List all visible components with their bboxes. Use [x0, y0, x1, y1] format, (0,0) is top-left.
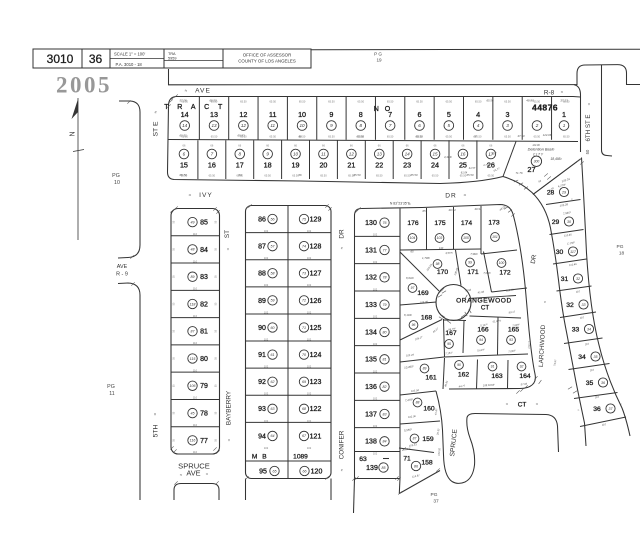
svg-text:97: 97 — [411, 286, 415, 290]
svg-text:65.50: 65.50 — [446, 100, 453, 104]
svg-text:16: 16 — [208, 161, 216, 170]
svg-text:102: 102 — [373, 287, 378, 291]
svg-text:5: 5 — [447, 110, 451, 119]
svg-text:27: 27 — [527, 165, 535, 174]
svg-text:30: 30 — [556, 249, 564, 256]
svg-text:91: 91 — [491, 365, 495, 369]
svg-text:11: 11 — [109, 391, 115, 397]
svg-text:65.50: 65.50 — [411, 173, 418, 177]
svg-text:30: 30 — [567, 220, 571, 224]
svg-text:102: 102 — [307, 310, 312, 314]
svg-text:65.50: 65.50 — [467, 173, 474, 177]
svg-text:13: 13 — [211, 123, 217, 128]
svg-text:11: 11 — [321, 152, 326, 157]
svg-text:8: 8 — [359, 123, 362, 128]
svg-text:9: 9 — [329, 110, 333, 119]
svg-text:78: 78 — [383, 276, 387, 280]
svg-text:102: 102 — [373, 397, 378, 401]
svg-text:20: 20 — [319, 161, 327, 170]
svg-text:88: 88 — [258, 271, 266, 278]
svg-text:DR: DR — [445, 193, 457, 200]
svg-text:22: 22 — [375, 161, 383, 170]
svg-text:64: 64 — [238, 173, 242, 177]
svg-text:130: 130 — [439, 246, 444, 250]
svg-text:100: 100 — [499, 261, 505, 265]
svg-text:3: 3 — [506, 123, 509, 128]
svg-text:73: 73 — [302, 272, 306, 276]
svg-text:85: 85 — [200, 220, 208, 227]
svg-text:89: 89 — [258, 298, 266, 305]
svg-text:102: 102 — [373, 233, 378, 237]
svg-text:48: 48 — [191, 248, 195, 252]
svg-text:65.50: 65.50 — [432, 174, 439, 178]
svg-text:84: 84 — [383, 440, 387, 444]
svg-text:TRA: TRA — [168, 52, 176, 56]
svg-text:102: 102 — [373, 424, 378, 428]
svg-text:65.50: 65.50 — [211, 134, 218, 138]
svg-text:65.79: 65.79 — [180, 173, 187, 177]
svg-text:92: 92 — [258, 379, 266, 386]
svg-text:71.76: 71.76 — [516, 171, 523, 175]
svg-text:29: 29 — [552, 219, 560, 226]
svg-text:160: 160 — [423, 406, 435, 413]
svg-text:102: 102 — [373, 260, 378, 264]
svg-text:95: 95 — [259, 469, 267, 476]
svg-text:172: 172 — [499, 270, 511, 277]
svg-text:65.50: 65.50 — [269, 134, 276, 138]
svg-text:159: 159 — [422, 436, 434, 443]
svg-text:102: 102 — [307, 392, 312, 396]
svg-text:9: 9 — [330, 123, 333, 128]
svg-text:95: 95 — [447, 342, 451, 346]
svg-text:81: 81 — [383, 358, 387, 362]
svg-text:57.28: 57.28 — [180, 99, 187, 103]
svg-text:102: 102 — [307, 229, 312, 233]
svg-text:138: 138 — [365, 439, 377, 446]
svg-text:93: 93 — [509, 338, 513, 342]
svg-text:139: 139 — [366, 465, 378, 472]
svg-text:79: 79 — [200, 383, 208, 390]
svg-text:132: 132 — [365, 275, 377, 282]
svg-text:58: 58 — [271, 272, 275, 276]
svg-text:65.50: 65.50 — [269, 100, 276, 104]
svg-text:65.50: 65.50 — [487, 99, 494, 103]
svg-text:102: 102 — [307, 446, 312, 450]
svg-text:1: 1 — [563, 123, 566, 128]
svg-text:106: 106 — [190, 384, 196, 388]
svg-text:102: 102 — [264, 310, 269, 314]
svg-text:120: 120 — [311, 469, 323, 476]
svg-text:37: 37 — [433, 499, 439, 505]
svg-text:94: 94 — [479, 338, 483, 342]
svg-text:61: 61 — [271, 353, 275, 357]
svg-text:80: 80 — [383, 330, 387, 334]
svg-text:93: 93 — [258, 406, 266, 413]
svg-text:65: 65 — [410, 250, 414, 254]
svg-text:10: 10 — [300, 123, 306, 128]
svg-text:124.06: 124.06 — [532, 144, 540, 147]
svg-text:R-8: R-8 — [544, 90, 555, 97]
svg-text:110: 110 — [193, 396, 198, 400]
svg-text:168: 168 — [421, 315, 433, 322]
svg-text:50: 50 — [585, 149, 590, 154]
svg-text:65.50: 65.50 — [358, 100, 365, 104]
svg-text:COUNTY OF LOS ANGELES: COUNTY OF LOS ANGELES — [238, 59, 296, 64]
svg-text:102: 102 — [373, 342, 378, 346]
svg-text:36: 36 — [601, 381, 605, 385]
svg-text:45: 45 — [191, 411, 195, 415]
svg-text:66: 66 — [298, 173, 302, 177]
svg-text:19: 19 — [292, 161, 300, 170]
svg-text:102: 102 — [264, 283, 269, 287]
svg-text:129: 129 — [310, 216, 322, 223]
svg-text:117: 117 — [570, 250, 577, 254]
svg-text:102: 102 — [264, 392, 269, 396]
svg-text:65.50: 65.50 — [299, 100, 306, 104]
svg-text:87: 87 — [258, 244, 266, 251]
svg-text:98: 98 — [436, 262, 440, 266]
svg-text:162: 162 — [458, 372, 470, 379]
svg-text:110: 110 — [193, 287, 198, 291]
svg-text:166: 166 — [477, 327, 489, 334]
svg-text:123: 123 — [310, 379, 322, 386]
svg-text:86: 86 — [258, 216, 266, 223]
svg-text:110: 110 — [193, 259, 198, 263]
svg-text:14: 14 — [182, 123, 188, 128]
svg-text:N O: N O — [374, 106, 392, 113]
svg-text:65.50: 65.50 — [320, 174, 327, 178]
svg-text:118: 118 — [190, 302, 196, 306]
svg-text:3010: 3010 — [47, 52, 74, 66]
svg-text:110: 110 — [193, 314, 198, 318]
svg-text:102: 102 — [373, 451, 378, 455]
svg-text:136: 136 — [365, 384, 377, 391]
svg-text:11: 11 — [269, 110, 276, 119]
svg-text:81: 81 — [200, 329, 208, 336]
svg-text:12: 12 — [241, 123, 247, 128]
svg-text:65.50: 65.50 — [376, 174, 383, 178]
svg-text:32: 32 — [576, 277, 580, 281]
svg-text:10: 10 — [293, 152, 299, 157]
svg-text:23: 23 — [403, 161, 411, 170]
svg-text:CT: CT — [518, 402, 527, 409]
svg-text:8: 8 — [238, 152, 241, 157]
svg-text:31: 31 — [561, 276, 569, 283]
svg-text:3: 3 — [506, 110, 510, 119]
svg-text:OFFICE OF ASSESSOR: OFFICE OF ASSESSOR — [243, 53, 292, 58]
svg-text:65.50: 65.50 — [328, 100, 335, 104]
svg-text:90: 90 — [258, 325, 266, 332]
svg-text:ST E: ST E — [153, 121, 160, 136]
svg-text:13: 13 — [210, 110, 218, 119]
svg-text:135: 135 — [365, 357, 377, 364]
svg-text:82: 82 — [383, 385, 387, 389]
svg-text:6: 6 — [418, 123, 421, 128]
svg-text:158: 158 — [421, 460, 433, 467]
svg-text:169: 169 — [417, 290, 429, 297]
svg-text:10: 10 — [298, 110, 306, 119]
svg-text:69: 69 — [302, 380, 306, 384]
svg-text:128: 128 — [310, 244, 322, 251]
svg-text:89: 89 — [423, 367, 427, 371]
svg-text:AVE: AVE — [186, 469, 200, 478]
svg-text:21: 21 — [347, 161, 355, 170]
svg-text:ORANGEWOOD: ORANGEWOOD — [456, 298, 512, 305]
svg-text:70: 70 — [302, 353, 306, 357]
svg-text:83: 83 — [383, 412, 387, 416]
svg-text:15: 15 — [432, 152, 438, 157]
svg-text:64: 64 — [271, 434, 275, 438]
svg-text:131: 131 — [365, 247, 377, 254]
svg-text:1089: 1089 — [293, 454, 308, 461]
svg-text:CONIFER: CONIFER — [339, 430, 346, 459]
svg-text:300: 300 — [534, 160, 540, 164]
svg-text:66: 66 — [298, 135, 302, 139]
svg-text:65: 65 — [422, 209, 426, 213]
svg-text:82: 82 — [200, 301, 208, 308]
svg-text:102: 102 — [264, 446, 269, 450]
svg-text:SCALE 1" = 100': SCALE 1" = 100' — [114, 52, 145, 57]
svg-text:126: 126 — [310, 298, 322, 305]
svg-text:65.50: 65.50 — [354, 173, 361, 177]
svg-text:29: 29 — [561, 190, 566, 194]
svg-text:Detention Basin: Detention Basin — [528, 148, 555, 152]
svg-text:5959: 5959 — [168, 56, 176, 60]
svg-text:19: 19 — [376, 58, 382, 63]
svg-text:18,495²: 18,495² — [550, 157, 562, 161]
svg-text:65.50: 65.50 — [264, 174, 271, 178]
svg-text:67: 67 — [473, 135, 477, 139]
svg-text:102: 102 — [307, 337, 312, 341]
svg-text:AVE: AVE — [195, 88, 211, 95]
svg-text:102: 102 — [264, 256, 269, 260]
svg-text:13: 13 — [377, 152, 383, 157]
svg-text:M B: M B — [252, 454, 268, 461]
svg-text:110: 110 — [193, 450, 198, 454]
svg-text:69.32: 69.32 — [180, 134, 187, 138]
svg-text:16: 16 — [460, 152, 466, 157]
svg-text:86: 86 — [414, 464, 418, 468]
svg-text:94: 94 — [258, 433, 266, 440]
svg-text:34: 34 — [587, 327, 591, 331]
svg-text:103: 103 — [437, 236, 443, 240]
svg-text:165: 165 — [508, 327, 520, 334]
svg-text:63: 63 — [271, 407, 275, 411]
svg-text:71: 71 — [302, 326, 306, 330]
svg-text:65.50: 65.50 — [416, 135, 423, 139]
svg-text:12: 12 — [349, 152, 355, 157]
svg-text:174: 174 — [461, 220, 473, 227]
svg-text:49.88: 49.88 — [526, 99, 534, 103]
svg-text:124.06: 124.06 — [543, 133, 552, 137]
svg-text:24: 24 — [431, 161, 439, 170]
svg-text:6: 6 — [183, 152, 186, 157]
svg-text:127: 127 — [310, 271, 322, 278]
svg-text:4,577²: 4,577² — [445, 251, 452, 255]
svg-text:102: 102 — [264, 419, 269, 423]
svg-text:99: 99 — [468, 261, 472, 265]
svg-text:65.50: 65.50 — [387, 134, 394, 138]
svg-text:77: 77 — [200, 438, 208, 445]
svg-text:102: 102 — [373, 315, 378, 319]
svg-text:2: 2 — [535, 123, 539, 128]
svg-text:9: 9 — [266, 152, 269, 157]
svg-text:91: 91 — [258, 352, 266, 359]
svg-text:103.02: 103.02 — [437, 447, 442, 456]
svg-text:87: 87 — [413, 437, 417, 441]
svg-text:85: 85 — [382, 466, 386, 470]
svg-text:PG: PG — [617, 244, 624, 250]
svg-text:110: 110 — [193, 368, 198, 372]
svg-text:5: 5 — [448, 123, 451, 128]
svg-text:110: 110 — [193, 423, 198, 427]
svg-text:≈: ≈ — [409, 202, 411, 206]
svg-text:171: 171 — [467, 269, 479, 276]
svg-text:P G: P G — [374, 52, 382, 57]
svg-text:102: 102 — [373, 369, 378, 373]
svg-text:65.50: 65.50 — [357, 135, 364, 139]
svg-text:4,463²: 4,463² — [444, 155, 453, 159]
svg-text:110: 110 — [193, 341, 198, 345]
svg-text:89: 89 — [191, 275, 195, 279]
svg-text:1: 1 — [562, 110, 566, 119]
svg-text:74: 74 — [302, 244, 306, 248]
svg-text:N 83°23'35"E: N 83°23'35"E — [390, 202, 411, 206]
svg-text:18: 18 — [264, 161, 272, 170]
svg-text:65.50: 65.50 — [416, 100, 423, 104]
svg-text:102: 102 — [264, 365, 269, 369]
svg-text:7,960²: 7,960² — [470, 252, 477, 256]
svg-text:65.50: 65.50 — [475, 100, 482, 104]
svg-text:102: 102 — [307, 365, 312, 369]
svg-text:14: 14 — [405, 152, 411, 157]
svg-text:60: 60 — [271, 326, 275, 330]
svg-text:IVY: IVY — [199, 192, 213, 199]
svg-text:7,068²: 7,068² — [483, 271, 490, 275]
svg-text:14: 14 — [181, 110, 189, 119]
svg-text:102: 102 — [307, 283, 312, 287]
svg-text:N: N — [70, 131, 77, 136]
svg-text:7: 7 — [211, 152, 214, 157]
svg-text:161: 161 — [425, 375, 437, 382]
svg-text:33: 33 — [582, 303, 586, 307]
svg-text:PG: PG — [112, 173, 120, 179]
svg-text:35: 35 — [586, 380, 594, 387]
svg-text:41.57: 41.57 — [469, 166, 476, 170]
svg-text:175: 175 — [434, 220, 446, 227]
svg-text:124: 124 — [310, 352, 322, 359]
svg-text:8,104²: 8,104² — [404, 313, 413, 317]
svg-text:105: 105 — [463, 236, 469, 240]
svg-text:116: 116 — [190, 439, 196, 443]
svg-text:78: 78 — [200, 410, 208, 417]
svg-text:96: 96 — [412, 323, 416, 327]
svg-text:36: 36 — [593, 406, 601, 413]
svg-text:102: 102 — [264, 229, 269, 233]
svg-text:130: 130 — [365, 220, 377, 227]
svg-text:65.50: 65.50 — [504, 134, 511, 138]
svg-text:DR: DR — [339, 229, 346, 239]
svg-text:49.94: 49.94 — [449, 208, 456, 212]
svg-text:80: 80 — [200, 356, 208, 363]
svg-text:PG: PG — [431, 492, 438, 498]
svg-text:65.50: 65.50 — [563, 134, 570, 138]
svg-text:65.50: 65.50 — [446, 134, 453, 138]
svg-text:49.94: 49.94 — [475, 207, 482, 211]
svg-text:T R A C T: T R A C T — [164, 104, 226, 111]
svg-text:34: 34 — [578, 354, 586, 361]
svg-text:102: 102 — [264, 337, 269, 341]
svg-text:61.04: 61.04 — [461, 171, 468, 175]
svg-text:66: 66 — [303, 469, 307, 473]
svg-text:163: 163 — [491, 373, 503, 380]
svg-text:125: 125 — [310, 325, 322, 332]
svg-text:59: 59 — [271, 299, 275, 303]
svg-text:65.50: 65.50 — [240, 100, 247, 104]
svg-text:PG: PG — [107, 384, 115, 390]
svg-text:90: 90 — [457, 363, 461, 367]
svg-text:137: 137 — [365, 411, 377, 418]
svg-text:37.23: 37.23 — [560, 99, 568, 103]
svg-text:63: 63 — [359, 456, 367, 463]
svg-text:65.50: 65.50 — [534, 134, 541, 138]
svg-text:170: 170 — [437, 269, 449, 276]
svg-text:11: 11 — [270, 123, 275, 128]
svg-text:44876: 44876 — [532, 103, 558, 113]
svg-text:4: 4 — [477, 123, 480, 128]
svg-text:101: 101 — [492, 235, 498, 239]
svg-text:7: 7 — [389, 123, 392, 128]
svg-text:75: 75 — [302, 217, 306, 221]
svg-text:72: 72 — [302, 299, 306, 303]
svg-text:65.50: 65.50 — [387, 100, 394, 104]
svg-text:6: 6 — [417, 110, 421, 119]
svg-text:134: 134 — [365, 329, 377, 336]
svg-text:84: 84 — [200, 247, 208, 254]
svg-text:62: 62 — [271, 380, 275, 384]
svg-text:65.50: 65.50 — [210, 99, 217, 103]
svg-text:5TH: 5TH — [153, 424, 160, 437]
svg-text:1,796²: 1,796² — [422, 256, 431, 260]
svg-text:1.70': 1.70' — [483, 163, 489, 167]
svg-text:10: 10 — [114, 180, 120, 186]
svg-text:C I T Y: C I T Y — [533, 153, 544, 157]
svg-text:65.50: 65.50 — [504, 100, 511, 104]
svg-text:15: 15 — [180, 161, 188, 170]
svg-text:35: 35 — [594, 355, 598, 359]
svg-text:6TH ST E: 6TH ST E — [585, 114, 592, 141]
svg-text:121: 121 — [310, 433, 322, 440]
svg-text:71: 71 — [403, 456, 411, 463]
svg-text:173: 173 — [488, 220, 500, 227]
svg-text:33: 33 — [572, 326, 580, 333]
svg-text:P.A. 3010 - 18: P.A. 3010 - 18 — [116, 62, 143, 67]
svg-text:68: 68 — [302, 407, 306, 411]
svg-text:76: 76 — [383, 221, 387, 225]
svg-text:83: 83 — [200, 274, 208, 281]
svg-text:79: 79 — [383, 303, 387, 307]
svg-text:108.50'04": 108.50'04" — [483, 383, 497, 388]
svg-text:133: 133 — [365, 302, 377, 309]
svg-text:110.17: 110.17 — [527, 340, 532, 349]
svg-text:4: 4 — [476, 110, 480, 119]
svg-text:AVE: AVE — [117, 264, 128, 270]
svg-text:110: 110 — [193, 232, 198, 236]
svg-text:65.50: 65.50 — [209, 174, 216, 178]
svg-text:164: 164 — [519, 373, 531, 380]
svg-text:176: 176 — [407, 220, 419, 227]
svg-text:17: 17 — [236, 161, 244, 170]
